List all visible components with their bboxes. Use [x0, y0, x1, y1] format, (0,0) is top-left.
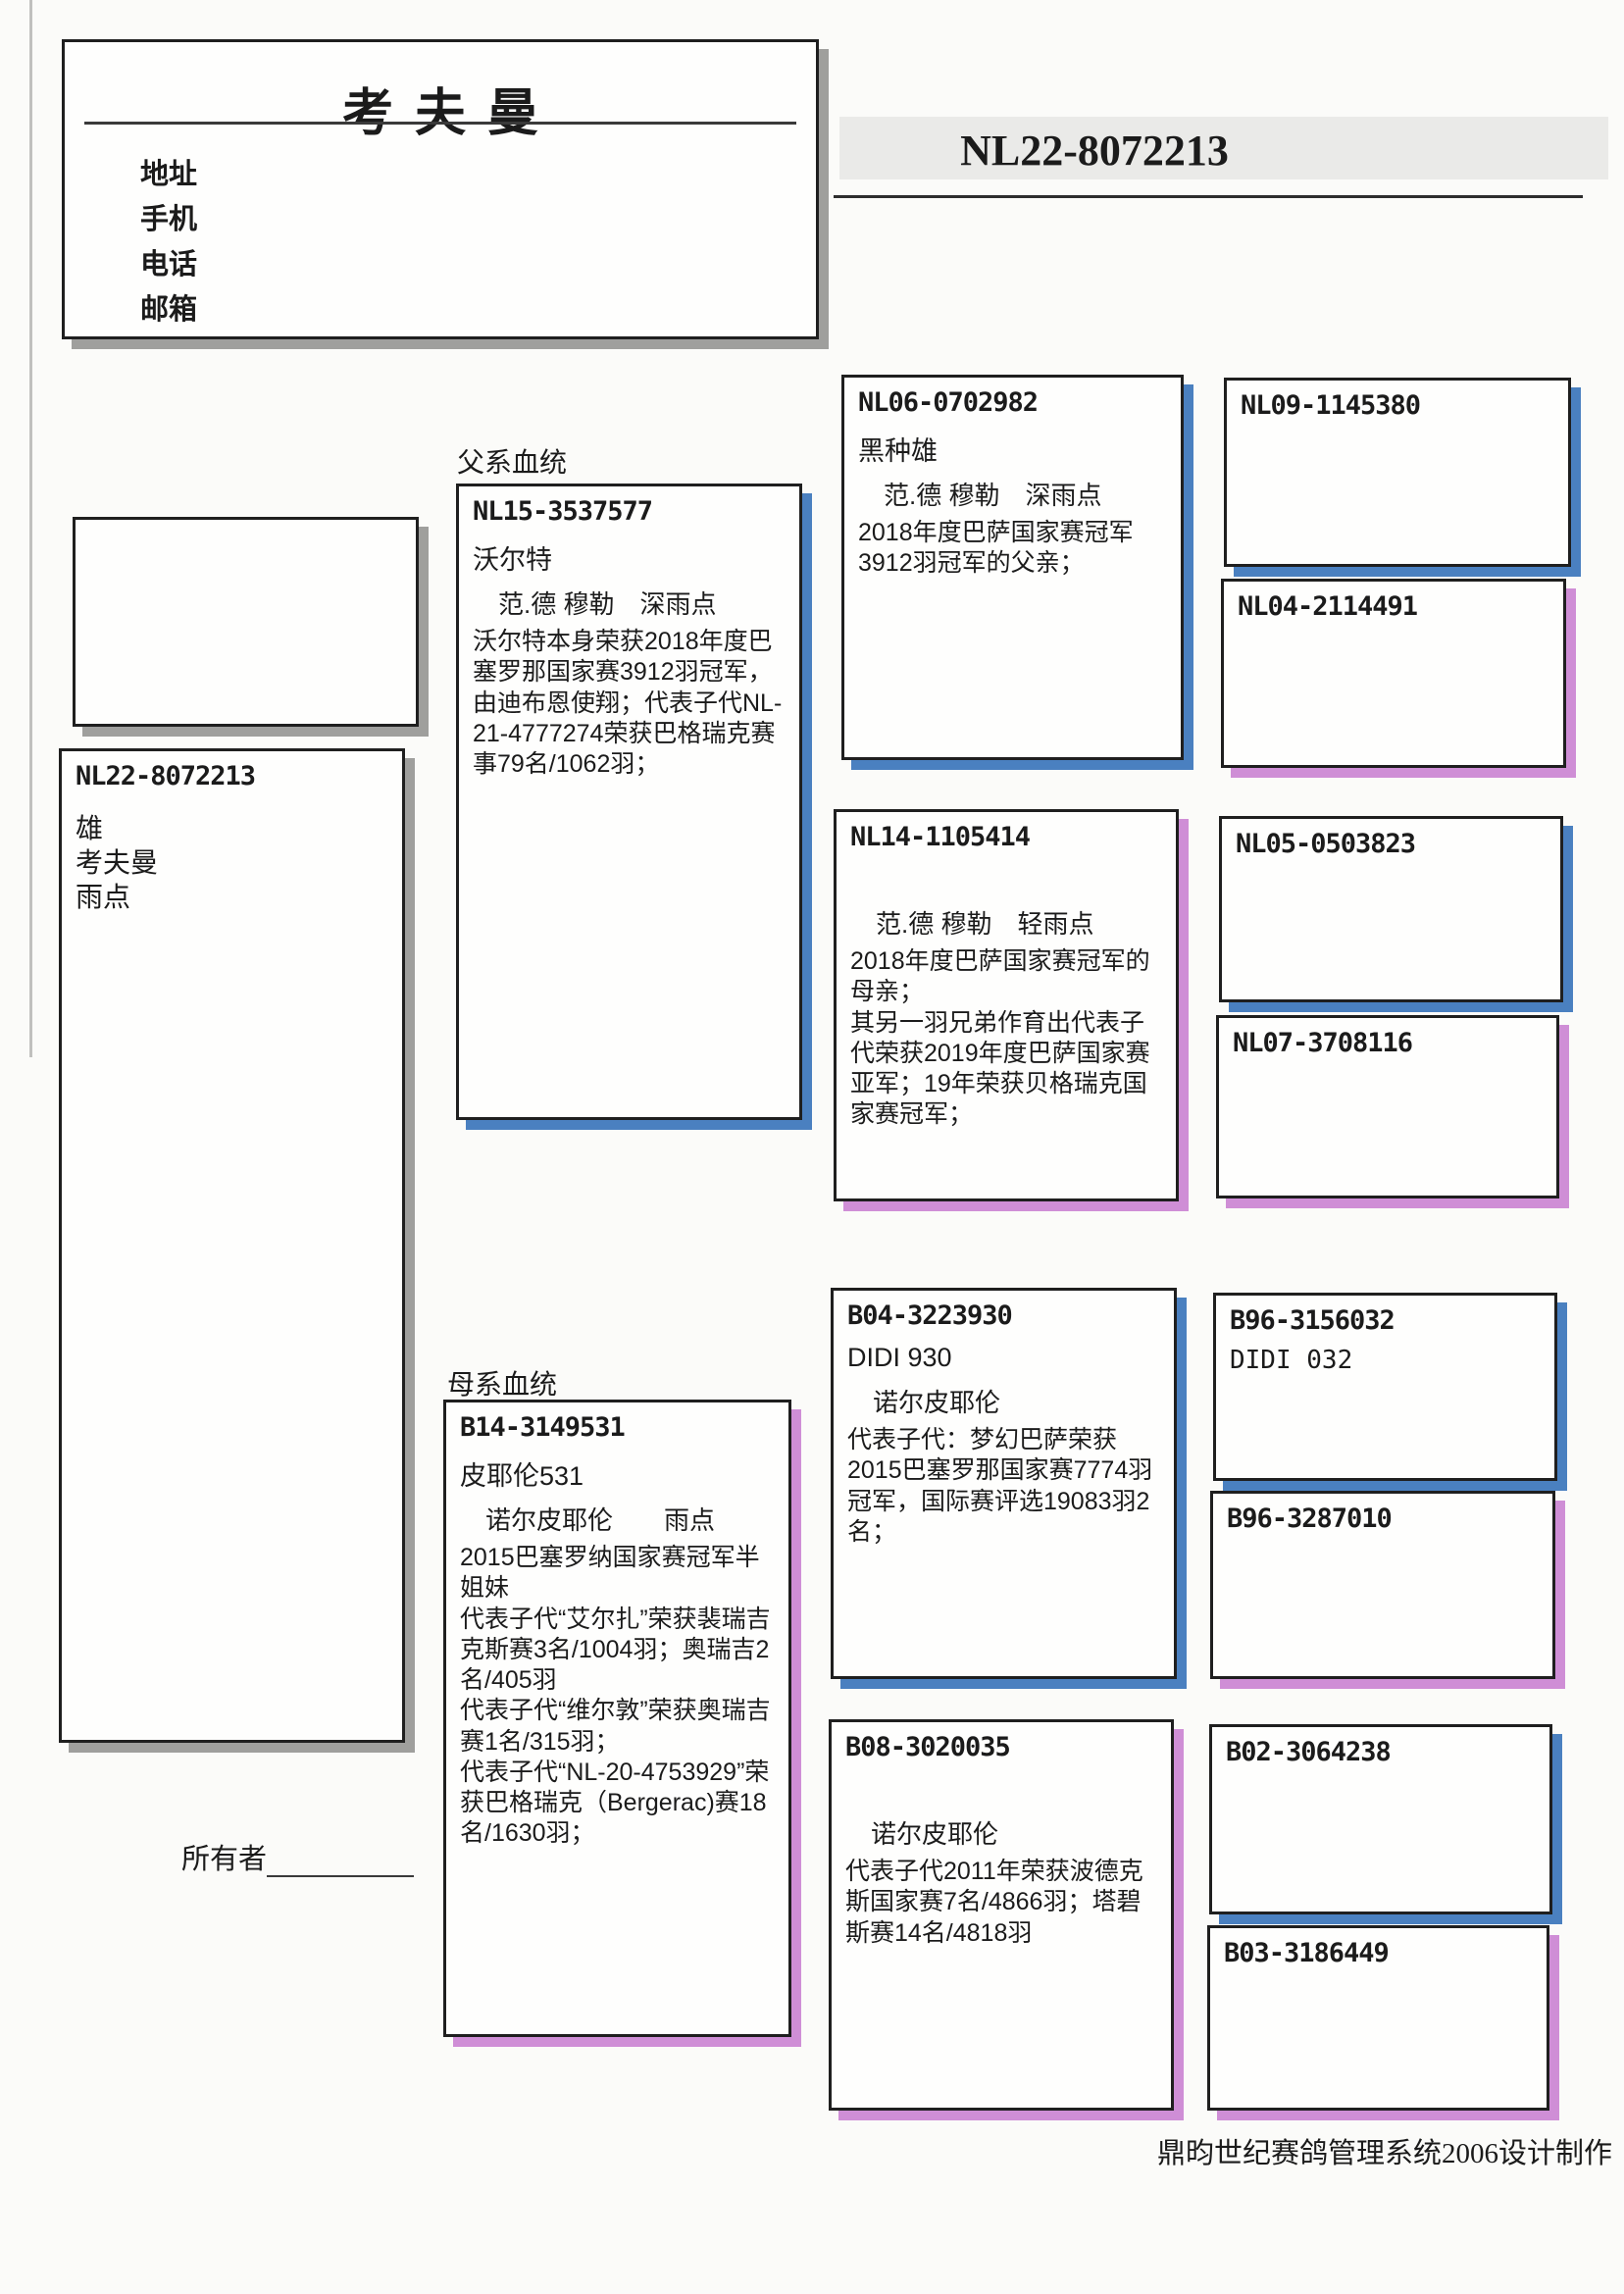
gg8-ring-number: B03-3186449 [1224, 1938, 1533, 1968]
scan-edge-artifact [29, 0, 32, 1057]
mother-ring-number: B14-3149531 [460, 1412, 775, 1443]
mm-achievements: 代表子代2011年荣获波德克斯国家赛7名/4866羽；塔碧斯赛14名/4818羽 [845, 1857, 1157, 1949]
gg6-ring-number: B96-3287010 [1227, 1504, 1539, 1534]
mm-ring-number: B08-3020035 [845, 1732, 1157, 1762]
subject-ring-number: NL22-8072213 [76, 761, 388, 791]
ff-strain: 范.德 穆勒 深雨点 [858, 476, 1167, 512]
owner-label: 所有者 [181, 1836, 267, 1877]
subject-details: 雄 考夫曼 雨点 [76, 811, 388, 914]
subject-sex: 雄 [76, 811, 388, 845]
fm-achievements: 2018年度巴萨国家赛冠军的母亲； 其另一羽兄弟作育出代表子代荣获2019年度巴… [850, 946, 1162, 1131]
great-grandparent-box: B96-3156032 DIDI 032 [1213, 1293, 1557, 1481]
mother-box: B14-3149531 皮耶伦531 诺尔皮耶伦 雨点 2015巴塞罗纳国家赛冠… [443, 1400, 791, 2037]
mf-ring-number: B04-3223930 [847, 1300, 1160, 1331]
gg1-ring-number: NL09-1145380 [1241, 390, 1554, 421]
great-grandparent-box: NL09-1145380 [1224, 378, 1571, 567]
father-strain: 范.德 穆勒 深雨点 [473, 585, 786, 621]
title-divider [84, 122, 796, 125]
ff-achievements: 2018年度巴萨国家赛冠军3912羽冠军的父亲； [858, 518, 1167, 580]
mm-strain: 诺尔皮耶伦 [845, 1814, 1157, 1851]
loft-contact-fields: 地址 手机 电话 邮箱 [140, 152, 197, 332]
header-ring-number: NL22-8072213 [839, 126, 1349, 176]
ff-name: 黑种雄 [858, 430, 1167, 468]
fm-strain: 范.德 穆勒 轻雨点 [850, 904, 1162, 941]
mf-achievements: 代表子代：梦幻巴萨荣获2015巴塞罗那国家赛7774羽冠军，国际赛评选19083… [847, 1425, 1160, 1548]
father-box: NL15-3537577 沃尔特 范.德 穆勒 深雨点 沃尔特本身荣获2018年… [456, 484, 802, 1120]
gg5-ring-number: B96-3156032 [1230, 1305, 1541, 1336]
maternal-bloodline-label: 母系血统 [447, 1363, 557, 1402]
grandfather-maternal-box: B04-3223930 DIDI 930 诺尔皮耶伦 代表子代：梦幻巴萨荣获20… [831, 1288, 1177, 1679]
gg3-ring-number: NL05-0503823 [1236, 829, 1547, 859]
footer-credit: 鼎昀世纪赛鸽管理系统2006设计制作 [1157, 2130, 1612, 2171]
great-grandparent-box: B02-3064238 [1209, 1724, 1552, 1914]
ff-ring-number: NL06-0702982 [858, 387, 1167, 418]
grandmother-paternal-box: NL14-1105414 范.德 穆勒 轻雨点 2018年度巴萨国家赛冠军的母亲… [834, 809, 1179, 1201]
subject-pigeon-box: NL22-8072213 雄 考夫曼 雨点 [59, 748, 405, 1743]
photo-placeholder-box [73, 517, 419, 727]
owner-signature-underline [267, 1844, 414, 1877]
grandfather-paternal-box: NL06-0702982 黑种雄 范.德 穆勒 深雨点 2018年度巴萨国家赛冠… [841, 375, 1184, 760]
mf-strain: 诺尔皮耶伦 [847, 1383, 1160, 1419]
email-label: 邮箱 [140, 287, 197, 332]
mm-name [845, 1774, 1157, 1807]
great-grandparent-box: NL04-2114491 [1221, 579, 1566, 768]
father-name: 沃尔特 [473, 538, 786, 577]
great-grandparent-box: NL05-0503823 [1219, 816, 1563, 1002]
gg4-ring-number: NL07-3708116 [1233, 1028, 1543, 1058]
subject-strain: 考夫曼 [76, 845, 388, 880]
great-grandparent-box: NL07-3708116 [1216, 1015, 1559, 1198]
phone-label: 电话 [140, 242, 197, 287]
fm-name [850, 864, 1162, 896]
gg2-ring-number: NL04-2114491 [1238, 591, 1549, 622]
mother-name: 皮耶伦531 [460, 1454, 775, 1493]
father-ring-number: NL15-3537577 [473, 496, 786, 527]
mf-name: DIDI 930 [847, 1343, 1160, 1375]
mother-strain: 诺尔皮耶伦 雨点 [460, 1501, 775, 1537]
pedigree-page: 考夫曼 地址 手机 电话 邮箱 NL22-8072213 NL22-807221… [0, 0, 1624, 2294]
father-achievements: 沃尔特本身荣获2018年度巴塞罗那国家赛3912羽冠军，由迪布恩使翔；代表子代N… [473, 627, 786, 780]
loft-info-card: 考夫曼 地址 手机 电话 邮箱 [62, 39, 819, 339]
mother-achievements: 2015巴塞罗纳国家赛冠军半姐妹 代表子代“艾尔扎”荣获裴瑞吉克斯赛3名/100… [460, 1543, 775, 1850]
great-grandparent-box: B03-3186449 [1207, 1925, 1549, 2111]
paternal-bloodline-label: 父系血统 [457, 441, 567, 481]
great-grandparent-box: B96-3287010 [1210, 1491, 1555, 1679]
header-divider [834, 195, 1583, 198]
subject-color: 雨点 [76, 880, 388, 914]
gg7-ring-number: B02-3064238 [1226, 1737, 1536, 1767]
loft-title: 考夫曼 [65, 72, 816, 145]
fm-ring-number: NL14-1105414 [850, 822, 1162, 852]
grandmother-maternal-box: B08-3020035 诺尔皮耶伦 代表子代2011年荣获波德克斯国家赛7名/4… [829, 1719, 1174, 2111]
gg5-name: DIDI 032 [1230, 1346, 1541, 1375]
owner-signature-row: 所有者 [181, 1836, 414, 1877]
mobile-label: 手机 [140, 197, 197, 242]
address-label: 地址 [140, 152, 197, 197]
